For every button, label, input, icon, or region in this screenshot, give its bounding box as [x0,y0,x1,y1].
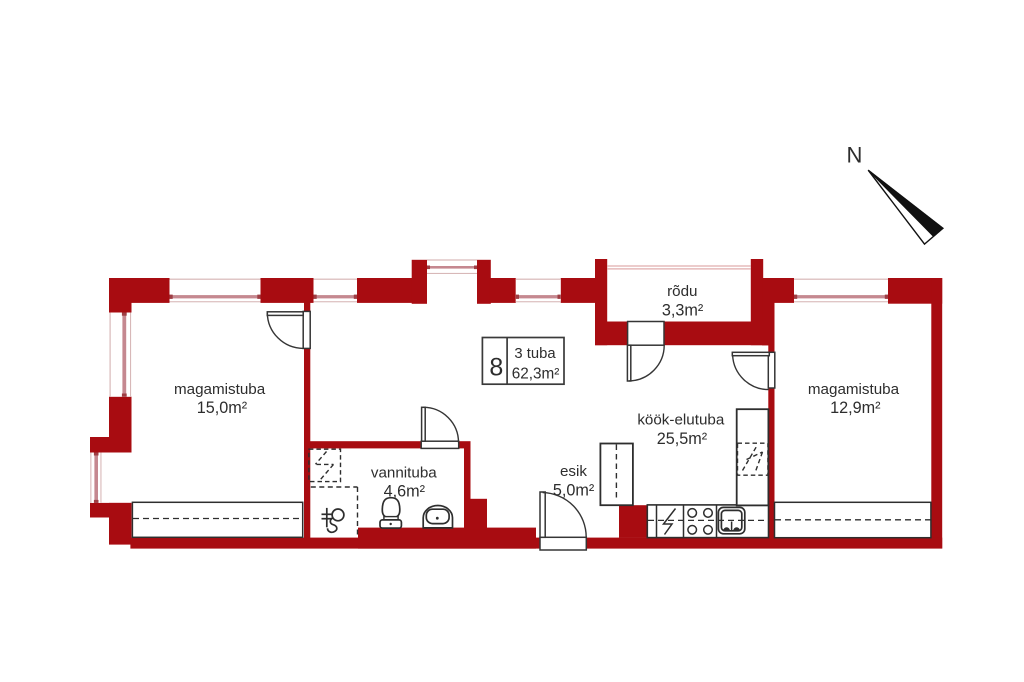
svg-text:5,0m²: 5,0m² [553,481,595,499]
svg-text:25,5m²: 25,5m² [657,430,708,448]
svg-text:köök-elutuba: köök-elutuba [637,412,725,429]
svg-text:magamistuba: magamistuba [174,381,266,398]
svg-text:62,3m²: 62,3m² [512,365,560,382]
svg-text:3 tuba: 3 tuba [514,346,556,362]
svg-text:12,9m²: 12,9m² [830,399,881,417]
svg-text:esik: esik [560,463,587,480]
svg-text:vannituba: vannituba [371,464,437,481]
svg-text:4,6m²: 4,6m² [384,483,426,501]
svg-text:15,0m²: 15,0m² [197,399,248,417]
svg-text:8: 8 [489,354,503,382]
svg-text:rõdu: rõdu [667,283,697,300]
svg-text:3,3m²: 3,3m² [662,301,704,319]
svg-text:N: N [847,143,863,168]
svg-text:magamistuba: magamistuba [808,381,900,398]
